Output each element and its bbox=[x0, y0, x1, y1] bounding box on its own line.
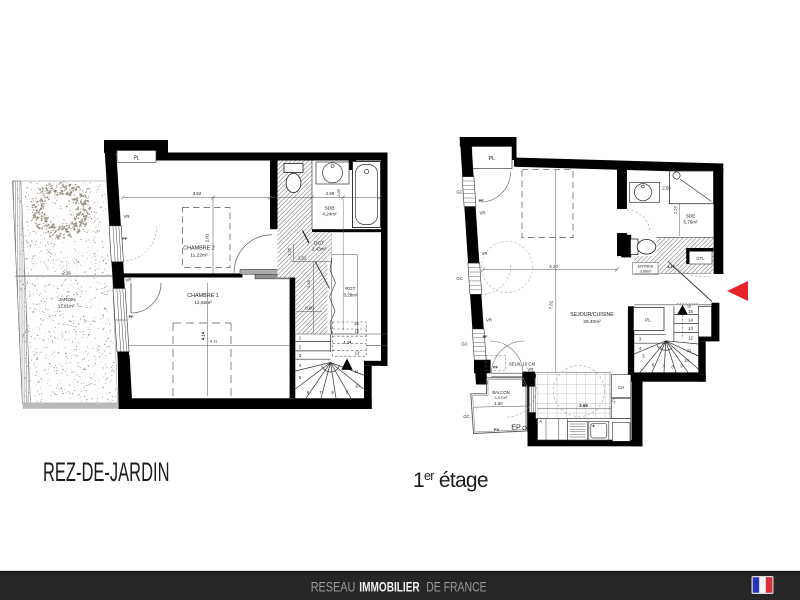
svg-text:RESEAU: RESEAU bbox=[311, 580, 356, 595]
svg-text:12: 12 bbox=[688, 335, 693, 340]
svg-text:VR: VR bbox=[482, 251, 488, 256]
svg-text:1.14: 1.14 bbox=[344, 340, 353, 345]
svg-text:PF: PF bbox=[479, 199, 485, 203]
svg-text:3,66m²: 3,66m² bbox=[640, 269, 653, 273]
svg-text:REZ-DE-JARDIN: REZ-DE-JARDIN bbox=[43, 457, 170, 487]
svg-text:PL: PL bbox=[489, 156, 495, 162]
svg-text:12,91m²: 12,91m² bbox=[58, 304, 75, 309]
svg-text:11: 11 bbox=[687, 348, 692, 353]
svg-text:2.66: 2.66 bbox=[579, 403, 588, 408]
svg-text:12,92m²: 12,92m² bbox=[194, 300, 212, 306]
svg-text:GC: GC bbox=[461, 342, 467, 347]
svg-text:1.05: 1.05 bbox=[287, 247, 292, 256]
svg-text:CH: CH bbox=[618, 385, 624, 390]
svg-text:GC: GC bbox=[456, 276, 462, 281]
svg-text:DE FRANCE: DE FRANCE bbox=[426, 580, 486, 595]
svg-text:1.52: 1.52 bbox=[298, 256, 307, 261]
svg-text:RGT: RGT bbox=[345, 286, 355, 292]
svg-text:PV: PV bbox=[494, 427, 500, 432]
svg-text:4.14: 4.14 bbox=[201, 331, 206, 340]
svg-text:11,22m²: 11,22m² bbox=[190, 253, 208, 259]
svg-text:10: 10 bbox=[684, 358, 689, 363]
svg-text:13: 13 bbox=[688, 326, 693, 331]
svg-text:PF: PF bbox=[129, 315, 135, 319]
svg-text:PF: PF bbox=[493, 366, 499, 370]
svg-text:14: 14 bbox=[688, 317, 693, 322]
svg-text:PL: PL bbox=[645, 318, 651, 324]
svg-text:2.53: 2.53 bbox=[673, 205, 678, 214]
svg-text:16: 16 bbox=[354, 321, 359, 326]
svg-text:7.62: 7.62 bbox=[548, 300, 553, 309]
svg-text:VR: VR bbox=[126, 278, 132, 283]
svg-text:EP: EP bbox=[511, 423, 521, 432]
svg-text:IMMOBILIER: IMMOBILIER bbox=[359, 580, 420, 595]
svg-text:VR: VR bbox=[124, 214, 130, 219]
svg-text:PF: PF bbox=[122, 237, 128, 241]
svg-text:16: 16 bbox=[687, 305, 691, 309]
svg-text:ENTREE: ENTREE bbox=[638, 264, 654, 269]
svg-text:2.81: 2.81 bbox=[205, 233, 210, 242]
svg-text:2.46: 2.46 bbox=[306, 279, 311, 288]
svg-text:3,28m²: 3,28m² bbox=[343, 293, 358, 298]
svg-text:5,75m²: 5,75m² bbox=[683, 220, 698, 225]
svg-text:2.59: 2.59 bbox=[662, 186, 671, 191]
svg-text:4.11: 4.11 bbox=[210, 339, 217, 344]
svg-text:0.90: 0.90 bbox=[305, 305, 314, 310]
svg-text:2,43m²: 2,43m² bbox=[312, 247, 327, 252]
svg-text:VR: VR bbox=[528, 367, 534, 372]
svg-text:28,40m²: 28,40m² bbox=[583, 319, 601, 325]
svg-text:15: 15 bbox=[688, 309, 693, 314]
svg-text:VR: VR bbox=[486, 318, 492, 323]
svg-text:PF: PF bbox=[483, 335, 489, 339]
svg-text:SEJOUR/CUISINE: SEJOUR/CUISINE bbox=[570, 312, 614, 318]
svg-text:CHAMBRE 2: CHAMBRE 2 bbox=[183, 246, 214, 252]
svg-text:2.69: 2.69 bbox=[326, 191, 335, 196]
svg-text:GC: GC bbox=[463, 414, 469, 419]
svg-text:VR: VR bbox=[480, 211, 486, 216]
svg-text:GTL: GTL bbox=[696, 256, 705, 261]
svg-text:1,97m²: 1,97m² bbox=[495, 395, 508, 400]
svg-text:JARDIN: JARDIN bbox=[58, 297, 76, 303]
svg-text:GC: GC bbox=[456, 190, 462, 195]
svg-text:15: 15 bbox=[355, 329, 360, 334]
svg-text:SEUIL 10 CM: SEUIL 10 CM bbox=[509, 361, 536, 366]
svg-text:2.26: 2.26 bbox=[62, 270, 71, 275]
svg-text:4,24m²: 4,24m² bbox=[322, 212, 337, 217]
svg-text:2.05: 2.05 bbox=[337, 189, 341, 196]
svg-text:4.20: 4.20 bbox=[549, 264, 558, 269]
svg-text:13: 13 bbox=[355, 351, 360, 356]
svg-text:11: 11 bbox=[354, 369, 359, 374]
svg-text:PL: PL bbox=[133, 155, 139, 161]
svg-text:4.97: 4.97 bbox=[667, 265, 674, 269]
svg-text:CHAMBRE 1: CHAMBRE 1 bbox=[187, 293, 218, 299]
svg-text:1.50: 1.50 bbox=[494, 401, 503, 406]
svg-text:3.92: 3.92 bbox=[193, 191, 202, 196]
svg-text:BALCON: BALCON bbox=[492, 390, 509, 395]
svg-text:10: 10 bbox=[355, 384, 360, 389]
